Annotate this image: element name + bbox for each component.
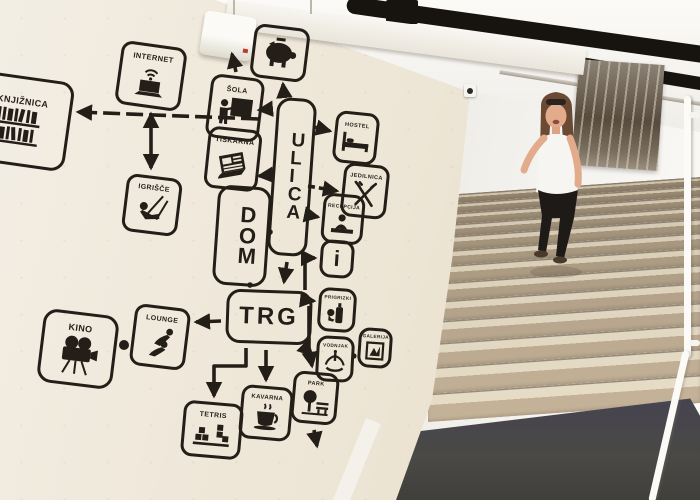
tetris-blocks-icon [191, 418, 233, 449]
fountain-icon [321, 348, 348, 375]
mural-node-trg: TRG [225, 289, 313, 346]
mural-node-galerija: GALERIJA [357, 327, 394, 369]
mural-node-kavarna: KAVARNA [238, 384, 295, 442]
black-pants [538, 190, 578, 258]
piggy-bank-icon [258, 33, 302, 74]
node-label: ULICA [286, 132, 298, 221]
node-label: TRG [239, 302, 300, 332]
handrail-bracket [689, 340, 700, 346]
indicator-dot [243, 49, 249, 54]
mural-node-internet: INTERNET [114, 40, 188, 113]
mural-node-tetris: TETRIS [180, 399, 245, 460]
mural-node-piggy-bank [249, 23, 311, 83]
reception-desk-icon [328, 209, 358, 235]
mural-node-tiskarna: TISKARNA [203, 125, 263, 192]
coffee-cup-icon [247, 400, 283, 433]
mural-node-igrisce: IGRIŠČE [121, 173, 184, 237]
snack-drink-icon [324, 300, 350, 326]
security-camera-icon [464, 84, 476, 97]
mural-node-dom: DOM [212, 184, 273, 288]
swing-icon [132, 191, 172, 227]
light-fixture [199, 10, 257, 62]
stairwell-photo: KNJIŽNICA INTERNET ŠOLA [0, 0, 700, 500]
mural-node-prigrizki: PRIGRIZKI [317, 287, 358, 334]
info-icon: i [333, 246, 341, 272]
mural-node-park: PARK [290, 370, 340, 426]
movie-camera-icon [51, 331, 104, 379]
picture-frame-icon [363, 339, 386, 362]
handrail-bracket [689, 112, 700, 118]
laptop-wifi-icon [128, 60, 173, 101]
node-label: DOM [237, 205, 247, 267]
mural-node-recepcija: RECEPCIJA [320, 192, 366, 245]
teacher-blackboard-icon [214, 93, 256, 131]
mural-node-knjiznica: KNJIŽNICA [0, 69, 76, 172]
bookshelf-icon [0, 103, 50, 150]
woman-descending-stairs [500, 86, 618, 286]
handrail [684, 96, 691, 358]
lounge-person-icon [139, 322, 181, 360]
mural-node-hostel: HOSTEL [331, 110, 380, 166]
sunglasses [546, 99, 566, 105]
beam-hanger [310, 0, 312, 14]
mural-node-kino: KINO [36, 308, 120, 391]
bed-icon [339, 128, 371, 155]
newspaper-icon [212, 144, 253, 182]
ceiling-beam-end [386, 0, 418, 24]
mural-node-lounge: LOUNGE [128, 303, 191, 371]
tree-bench-icon [298, 386, 332, 417]
mural-node-info: i [319, 239, 356, 279]
